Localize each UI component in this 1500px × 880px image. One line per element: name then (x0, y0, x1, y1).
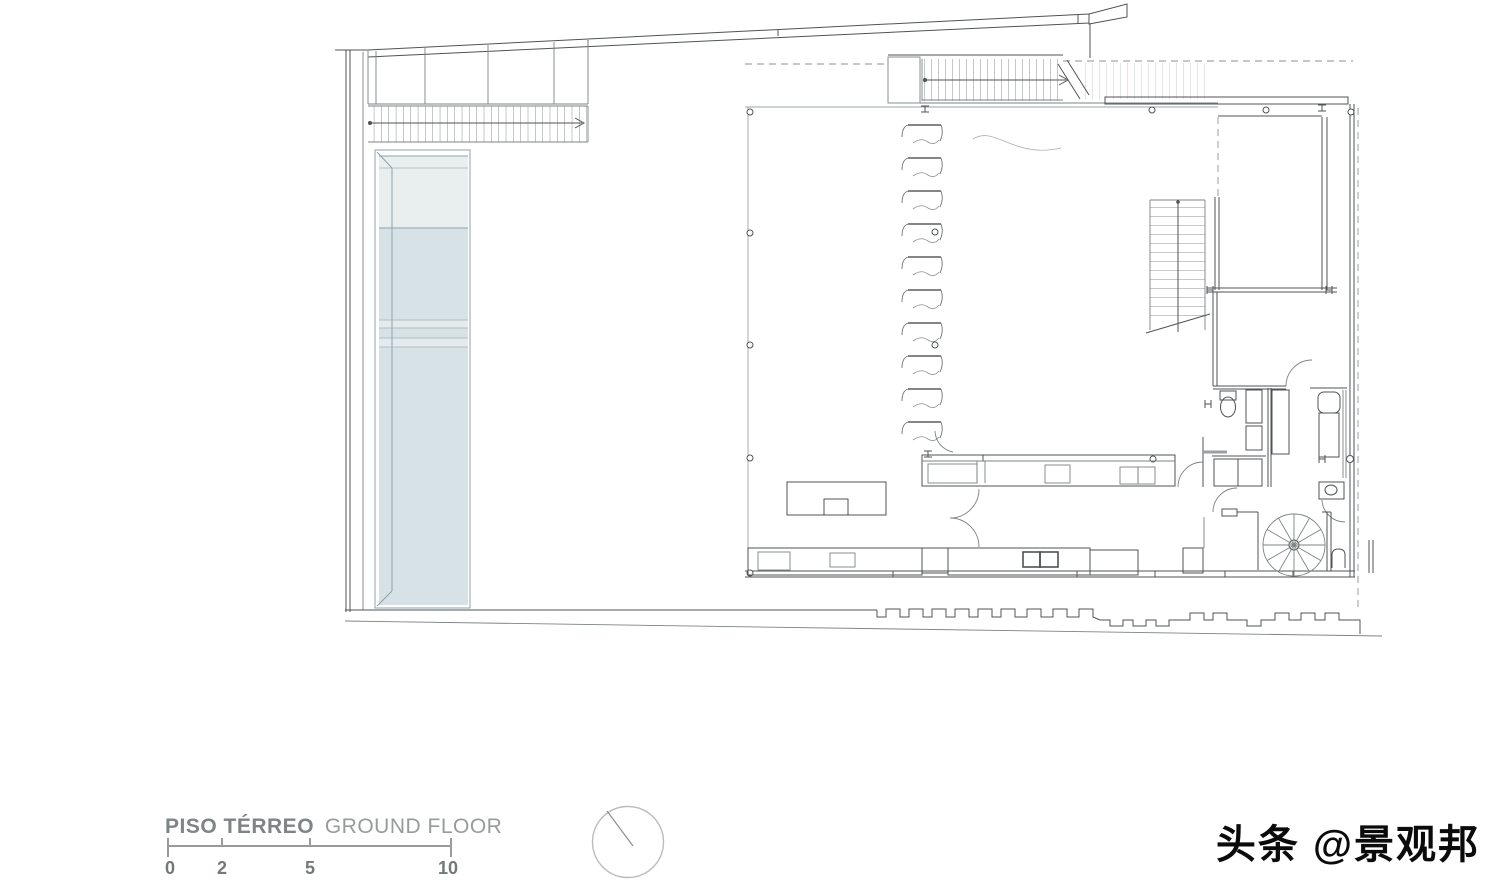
scale-bar (168, 838, 452, 857)
wardrobe (1272, 390, 1289, 454)
door-swing-arc (950, 518, 979, 547)
door-swing-arc (950, 489, 979, 518)
door-swing-arc (935, 431, 953, 452)
watermark-text: 头条 @景观邦 (1216, 812, 1480, 870)
scale-tick-label-10: 10 (433, 858, 463, 879)
washer-icon (1319, 482, 1344, 499)
louver-partition-wall (902, 125, 942, 441)
double-door-swings (935, 431, 979, 547)
toilet-icon (1220, 391, 1236, 417)
stair-landing (888, 57, 920, 103)
east-wall (1350, 104, 1354, 577)
door-swing-arc (1322, 500, 1345, 522)
exterior-stair-upper (368, 41, 588, 142)
floor-plan-sheet: PISO TÉRREO GROUND FLOOR 0 2 5 10 头条 @景观… (0, 0, 1500, 880)
south-wall (745, 571, 1355, 577)
spiral-stair-room (1213, 488, 1373, 576)
scale-tick-label-2: 2 (207, 858, 237, 879)
spiral-stair-icon (1263, 514, 1325, 576)
interior-staircase (1146, 200, 1210, 333)
door-swing-arc (1178, 462, 1203, 487)
bathroom-block (1178, 292, 1347, 548)
bedroom-walls (1207, 116, 1337, 292)
scale-tick-label-0: 0 (155, 858, 185, 879)
west-wall (346, 50, 363, 612)
steel-beam-markers (889, 105, 1332, 577)
crenellated-edge (877, 609, 1360, 634)
plan-title: PISO TÉRREO GROUND FLOOR (165, 815, 502, 839)
cabinet (1246, 426, 1262, 450)
door-swing-arc (1286, 360, 1312, 386)
plan-title-primary: PISO TÉRREO (165, 815, 314, 838)
cabinet (1238, 459, 1262, 486)
swimming-pool (375, 150, 470, 608)
terrace-ground-edge (345, 609, 1382, 636)
cabinet (1246, 390, 1262, 423)
column-markers (747, 107, 1354, 576)
kitchen-counter-upper (922, 455, 1175, 486)
north-indicator-icon (593, 807, 664, 878)
cabinet (1214, 459, 1238, 486)
floor-plan-drawing (0, 0, 1500, 880)
toilet-icon (1318, 392, 1340, 457)
entrance-swing-curve (973, 136, 1061, 151)
door-swing-arc (1213, 488, 1237, 512)
arch-niche (1332, 549, 1345, 568)
ground-slope-line (345, 621, 1382, 636)
kitchen-island (787, 482, 886, 515)
plan-title-secondary: GROUND FLOOR (318, 815, 502, 838)
scale-tick-label-5: 5 (295, 858, 325, 879)
